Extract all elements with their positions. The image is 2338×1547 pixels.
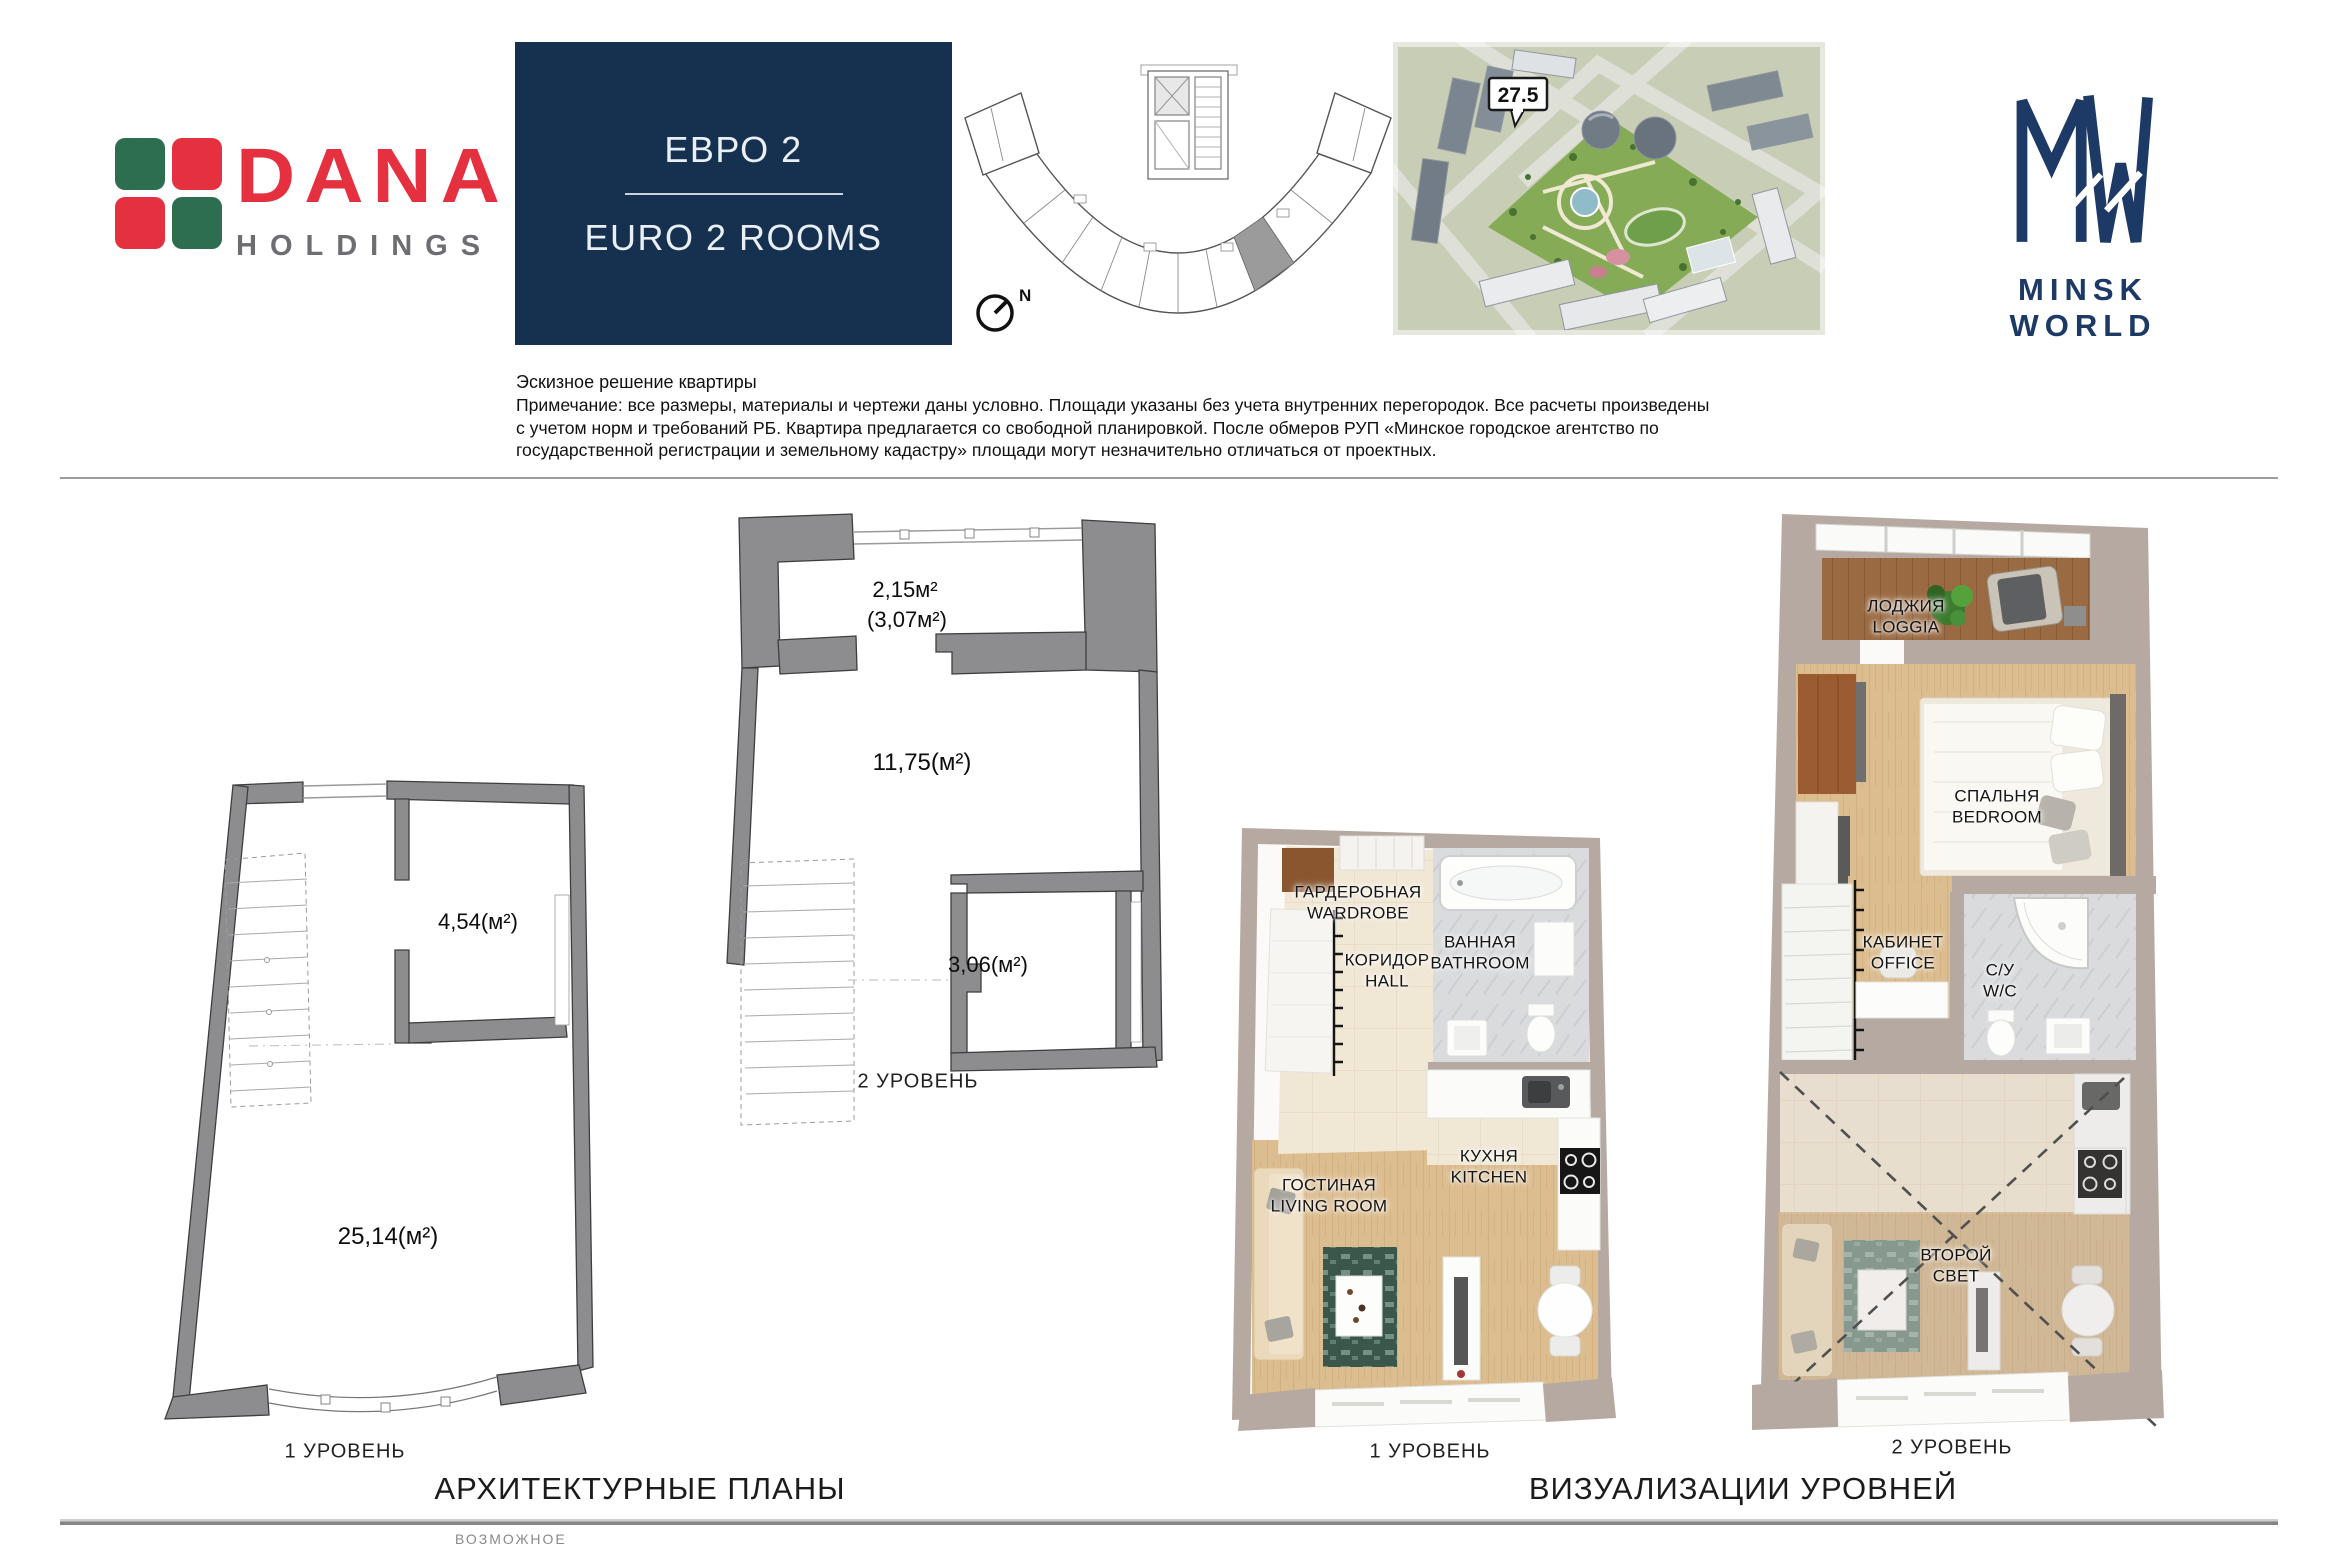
wc-sink [2046, 1018, 2090, 1054]
disclaimer-line: с учетом норм и требований РБ. Квартира … [516, 417, 1846, 440]
kitchen-sink [1522, 1076, 1570, 1108]
apartment-type-en: EURO 2 ROOMS [584, 217, 882, 259]
bath-vanity [1534, 922, 1574, 976]
bath-sink [1447, 1020, 1487, 1056]
plan-level1-label: 1 УРОВЕНЬ [284, 1441, 405, 1464]
area-label-loggia-full-l2: (3,07м²) [867, 607, 947, 633]
area-label-main-l1: 25,14(м²) [338, 1223, 439, 1251]
coffee-table [1336, 1276, 1382, 1336]
apartment-type-box: ЕВРО 2 EURO 2 ROOMS [515, 42, 952, 345]
room-label-loggia: ЛОДЖИЯ LOGGIA [1867, 596, 1945, 637]
height-callout-value: 27.5 [1498, 84, 1539, 107]
building-floor-schematic: N [963, 63, 1393, 348]
compass-north-label: N [1019, 286, 1031, 305]
bathtub [1440, 856, 1576, 910]
building-core [1141, 65, 1237, 179]
disclaimer-line: Примечание: все размеры, материалы и чер… [516, 394, 1846, 417]
dana-logo-squares [115, 138, 222, 261]
office-desk [1856, 982, 1948, 1018]
dana-square-green [115, 138, 165, 190]
visualization-level1 [1228, 818, 1618, 1433]
stove [1560, 1148, 1600, 1194]
hall-closet [1265, 909, 1337, 1073]
floor-plan-level1 [145, 755, 665, 1465]
toilet [1527, 1004, 1555, 1052]
disclaimer-block: Эскизное решение квартиры Примечание: вс… [516, 371, 1846, 462]
lounge-chair [1986, 565, 2063, 632]
bottom-separator [60, 1519, 2278, 1525]
brochure-page: { "brand": { "dana": { "name": "DANA", "… [0, 0, 2338, 1538]
dana-logo-sub: HOLDINGS [236, 232, 509, 261]
plan-level2-label: 2 УРОВЕНЬ [857, 1071, 978, 1094]
plans-heading: АРХИТЕКТУРНЫЕ ПЛАНЫ [434, 1471, 845, 1507]
dana-square-red [172, 138, 222, 190]
dana-logo: DANA HOLDINGS [115, 138, 509, 261]
dana-logo-name: DANA [236, 138, 509, 215]
stairs-level2 [741, 859, 854, 1125]
header-divider [60, 477, 2278, 479]
aerial-masterplan-image: 27.5 [1393, 42, 1825, 335]
toilet-wc [1987, 1010, 2015, 1056]
disclaimer-title: Эскизное решение квартиры [516, 371, 1846, 394]
room-label-office: КАБИНЕТ OFFICE [1863, 932, 1944, 973]
room-label-wc: С/У W/C [1983, 960, 2017, 1001]
vis-level2-label: 2 УРОВЕНЬ [1891, 1437, 2012, 1460]
stairs-vis [1782, 880, 1864, 1060]
vis-level1-label: 1 УРОВЕНЬ [1369, 1441, 1490, 1464]
room-label-kitchen: КУХНЯ KITCHEN [1451, 1146, 1528, 1187]
room-label-void: ВТОРОЙ СВЕТ [1920, 1245, 1991, 1286]
truncated-next-section-text: ВОЗМОЖНОЕ [455, 1531, 567, 1547]
title-divider [625, 193, 843, 195]
area-label-loggia-l2: 2,15м² [872, 577, 937, 603]
room-label-wardrobe: ГАРДЕРОБНАЯ WARDROBE [1295, 882, 1422, 923]
dana-square-red2 [115, 197, 165, 249]
minsk-world-monogram-icon [2013, 72, 2153, 252]
dana-square-green2 [172, 197, 222, 249]
room-label-hall: КОРИДОР HALL [1345, 950, 1430, 991]
bedroom-wardrobe [1798, 674, 1856, 794]
media-console [1443, 1257, 1480, 1380]
room-label-bedroom: СПАЛЬНЯ BEDROOM [1952, 786, 2042, 827]
area-label-main-l2: 11,75(м²) [873, 749, 972, 777]
area-label-room-l1: 4,54(м²) [438, 909, 518, 935]
area-label-room-l2: 3,06(м²) [948, 952, 1028, 978]
room-label-living: ГОСТИНАЯ LIVING ROOM [1271, 1175, 1388, 1216]
visualizations-heading: ВИЗУАЛИЗАЦИИ УРОВНЕЙ [1529, 1471, 1957, 1507]
apartment-type-ru: ЕВРО 2 [664, 129, 802, 171]
room-label-bathroom: ВАННАЯ BATHROOM [1430, 932, 1529, 973]
compass-icon: N [978, 286, 1031, 330]
disclaimer-line: государственной регистрации и земельному… [516, 439, 1846, 462]
entry-steps [1340, 836, 1424, 870]
minsk-world-name: MINSK WORLD [1943, 272, 2223, 344]
visualization-level2 [1752, 512, 2196, 1432]
